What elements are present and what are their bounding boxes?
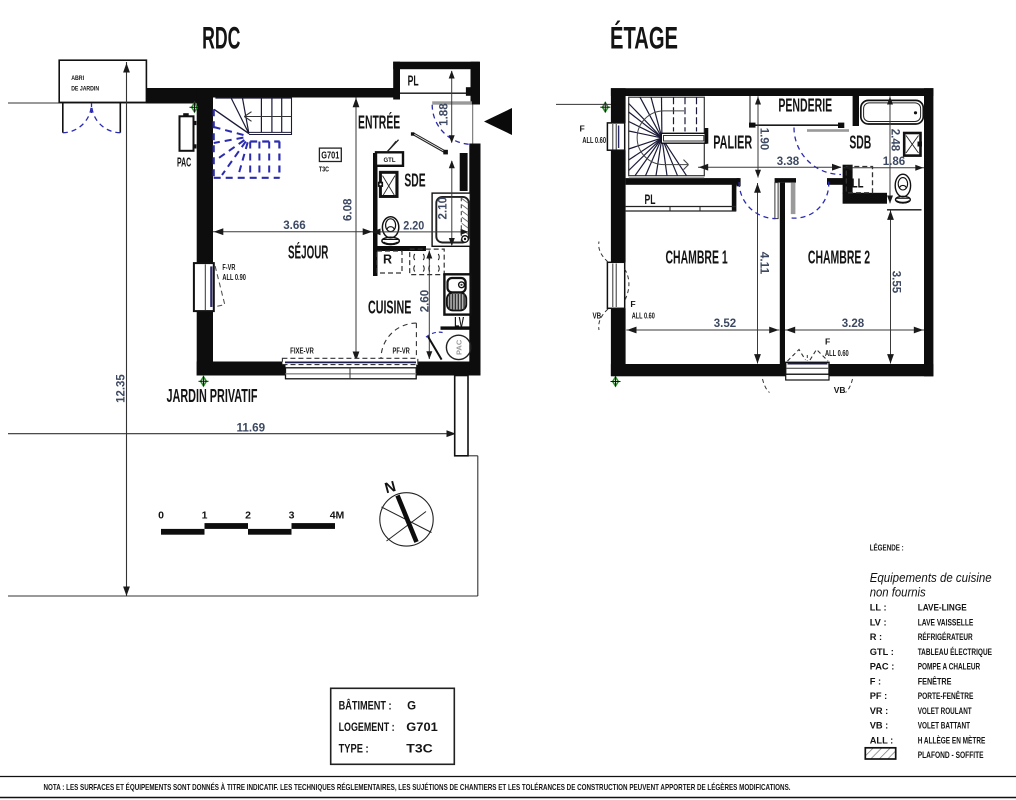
- svg-text:TYPE :: TYPE :: [339, 744, 369, 756]
- svg-text:1.88: 1.88: [437, 103, 451, 126]
- svg-text:LV :: LV :: [870, 617, 887, 627]
- svg-text:SÉJOUR: SÉJOUR: [288, 241, 328, 262]
- svg-text:T3C: T3C: [406, 744, 432, 756]
- svg-text:JARDIN PRIVATIF: JARDIN PRIVATIF: [167, 386, 258, 406]
- svg-text:3.66: 3.66: [283, 218, 306, 232]
- svg-text:VB: VB: [593, 310, 602, 320]
- svg-text:3.55: 3.55: [889, 271, 903, 294]
- svg-text:ENTRÉE: ENTRÉE: [358, 112, 400, 133]
- svg-text:4M: 4M: [330, 510, 345, 522]
- svg-text:G701: G701: [321, 150, 339, 162]
- svg-text:CHAMBRE 2: CHAMBRE 2: [808, 247, 870, 267]
- svg-text:VB: VB: [834, 385, 846, 395]
- svg-text:SDB: SDB: [849, 133, 871, 153]
- svg-text:11.69: 11.69: [237, 421, 266, 435]
- svg-text:VOLET ROULANT: VOLET ROULANT: [918, 706, 972, 716]
- svg-text:GTL: GTL: [384, 158, 396, 164]
- svg-text:LL: LL: [852, 176, 864, 190]
- svg-text:GTL :: GTL :: [870, 647, 894, 657]
- svg-text:ABRI: ABRI: [71, 75, 84, 82]
- svg-text:ALL 0.60: ALL 0.60: [582, 135, 606, 145]
- svg-text:LÉGENDE :: LÉGENDE :: [870, 542, 904, 552]
- svg-text:F: F: [825, 336, 830, 346]
- svg-text:BÂTIMENT :: BÂTIMENT :: [339, 700, 392, 713]
- svg-text:VB :: VB :: [870, 721, 889, 731]
- svg-text:T3C: T3C: [319, 164, 329, 173]
- svg-text:4.11: 4.11: [757, 252, 771, 275]
- svg-text:PF :: PF :: [870, 691, 888, 701]
- svg-text:2.48: 2.48: [889, 129, 903, 152]
- svg-text:PENDERIE: PENDERIE: [778, 96, 832, 116]
- svg-text:LOGEMENT :: LOGEMENT :: [339, 722, 395, 734]
- svg-text:3.28: 3.28: [842, 316, 865, 330]
- svg-text:3.38: 3.38: [777, 154, 800, 168]
- svg-text:SDE: SDE: [404, 169, 425, 190]
- svg-text:3: 3: [289, 510, 295, 522]
- svg-text:PLAFOND - SOFFITE: PLAFOND - SOFFITE: [918, 750, 984, 760]
- svg-text:CHAMBRE 1: CHAMBRE 1: [666, 247, 728, 267]
- svg-text:NOTA : LES SURFACES ET ÉQUIPEM: NOTA : LES SURFACES ET ÉQUIPEMENTS SONT …: [44, 782, 791, 792]
- svg-text:ALL 0.60: ALL 0.60: [825, 348, 849, 358]
- svg-text:LAVE-LINGE: LAVE-LINGE: [918, 602, 967, 612]
- svg-text:PAC :: PAC :: [870, 662, 895, 672]
- svg-text:Equipements de cuisine: Equipements de cuisine: [870, 570, 992, 585]
- svg-text:R: R: [383, 253, 392, 267]
- svg-text:ALL 0.60: ALL 0.60: [632, 310, 655, 320]
- svg-text:PF-VR: PF-VR: [393, 345, 411, 355]
- svg-text:1: 1: [202, 510, 208, 522]
- svg-text:F :: F :: [870, 676, 881, 686]
- svg-text:2.10: 2.10: [435, 197, 449, 220]
- svg-text:6.08: 6.08: [341, 198, 355, 221]
- svg-text:2.60: 2.60: [417, 290, 431, 313]
- svg-text:RÉFRIGÉRATEUR: RÉFRIGÉRATEUR: [918, 632, 973, 642]
- svg-text:0: 0: [158, 510, 164, 522]
- svg-text:PAC: PAC: [177, 155, 192, 170]
- svg-text:H ALLÈGE EN MÈTRE: H ALLÈGE EN MÈTRE: [918, 736, 986, 746]
- svg-text:2: 2: [245, 510, 251, 522]
- svg-text:G701: G701: [406, 722, 438, 734]
- svg-text:3.52: 3.52: [714, 316, 737, 330]
- svg-text:DE JARDIN: DE JARDIN: [71, 86, 99, 93]
- svg-text:F: F: [630, 299, 635, 309]
- svg-text:R :: R :: [870, 632, 882, 642]
- svg-text:1.86: 1.86: [883, 154, 906, 168]
- svg-text:12.35: 12.35: [114, 374, 128, 403]
- svg-text:LAVE VAISSELLE: LAVE VAISSELLE: [918, 617, 974, 627]
- svg-text:PORTE-FENÊTRE: PORTE-FENÊTRE: [918, 690, 974, 701]
- svg-text:CUISINE: CUISINE: [368, 298, 411, 318]
- svg-text:ALL :: ALL :: [870, 736, 894, 746]
- svg-text:PL: PL: [645, 191, 656, 207]
- svg-text:VOLET BATTANT: VOLET BATTANT: [918, 721, 971, 731]
- svg-text:F: F: [580, 124, 585, 134]
- svg-text:2.20: 2.20: [403, 218, 424, 232]
- svg-text:FIXE-VR: FIXE-VR: [290, 345, 314, 355]
- svg-text:1.90: 1.90: [758, 128, 772, 151]
- svg-text:F-VR: F-VR: [222, 263, 235, 272]
- svg-text:PALIER: PALIER: [713, 133, 752, 153]
- svg-text:G: G: [407, 701, 416, 713]
- svg-text:LL :: LL :: [870, 602, 887, 612]
- svg-text:FENÊTRE: FENÊTRE: [918, 675, 952, 686]
- svg-text:PAC: PAC: [455, 339, 464, 355]
- svg-text:ALL 0.90: ALL 0.90: [222, 273, 246, 282]
- svg-text:PL: PL: [408, 73, 419, 89]
- svg-text:TABLEAU ÉLECTRIQUE: TABLEAU ÉLECTRIQUE: [918, 647, 992, 657]
- svg-text:RDC: RDC: [202, 20, 240, 56]
- svg-text:ÉTAGE: ÉTAGE: [610, 20, 678, 56]
- svg-text:non fournis: non fournis: [870, 585, 926, 600]
- svg-text:VR :: VR :: [870, 706, 889, 716]
- svg-text:POMPE A CHALEUR: POMPE A CHALEUR: [918, 662, 981, 672]
